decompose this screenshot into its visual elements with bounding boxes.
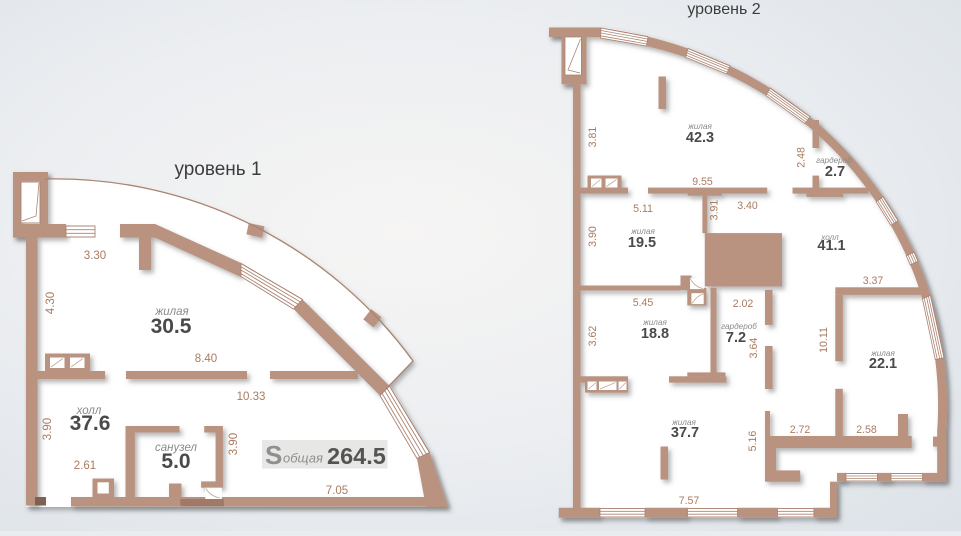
svg-text:10.11: 10.11 xyxy=(818,327,830,353)
svg-text:3.90: 3.90 xyxy=(587,226,599,247)
svg-text:3.81: 3.81 xyxy=(587,127,599,148)
svg-text:2.7: 2.7 xyxy=(825,164,845,180)
svg-text:5.0: 5.0 xyxy=(161,450,190,473)
svg-text:3.62: 3.62 xyxy=(587,326,599,347)
svg-text:7.57: 7.57 xyxy=(679,495,700,507)
svg-text:3.40: 3.40 xyxy=(737,200,758,212)
svg-text:18.8: 18.8 xyxy=(641,326,669,342)
svg-text:2.58: 2.58 xyxy=(856,424,877,436)
svg-text:19.5: 19.5 xyxy=(628,235,656,251)
svg-text:3.90: 3.90 xyxy=(228,433,240,455)
svg-text:264.5: 264.5 xyxy=(327,443,386,469)
svg-text:8.40: 8.40 xyxy=(195,353,217,365)
svg-text:уровень 2: уровень 2 xyxy=(687,1,760,18)
svg-text:2.61: 2.61 xyxy=(74,460,96,472)
svg-text:37.6: 37.6 xyxy=(70,412,111,435)
svg-text:37.7: 37.7 xyxy=(671,425,699,441)
svg-text:уровень 1: уровень 1 xyxy=(174,159,261,180)
svg-text:5.11: 5.11 xyxy=(633,203,653,215)
svg-text:4.30: 4.30 xyxy=(45,292,57,314)
svg-text:7.2: 7.2 xyxy=(726,330,746,346)
svg-text:5.16: 5.16 xyxy=(747,431,759,452)
svg-text:2.48: 2.48 xyxy=(796,147,808,168)
svg-text:42.3: 42.3 xyxy=(686,130,714,146)
svg-text:7.05: 7.05 xyxy=(326,485,348,497)
svg-text:9.55: 9.55 xyxy=(692,176,713,188)
svg-text:5.45: 5.45 xyxy=(633,297,654,309)
svg-text:41.1: 41.1 xyxy=(817,238,845,254)
svg-text:3.64: 3.64 xyxy=(748,338,760,359)
svg-text:S: S xyxy=(265,440,282,470)
svg-text:2.72: 2.72 xyxy=(790,424,811,436)
svg-text:общая: общая xyxy=(283,451,323,466)
svg-text:3.91: 3.91 xyxy=(709,200,721,221)
svg-text:22.1: 22.1 xyxy=(869,356,897,372)
svg-text:2.02: 2.02 xyxy=(733,298,754,310)
svg-text:30.5: 30.5 xyxy=(151,315,192,338)
svg-text:10.33: 10.33 xyxy=(237,391,266,403)
svg-text:3.90: 3.90 xyxy=(42,418,54,440)
svg-text:3.30: 3.30 xyxy=(84,250,106,262)
svg-text:3.37: 3.37 xyxy=(863,275,884,287)
